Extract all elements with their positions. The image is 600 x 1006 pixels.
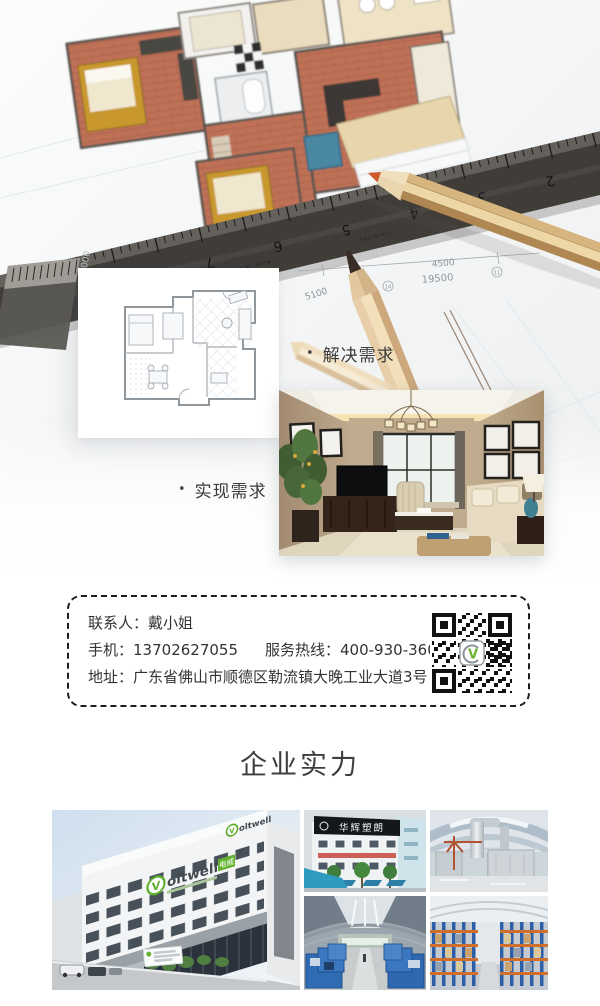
bullet-icon: •	[178, 482, 187, 497]
bullet-icon: •	[306, 346, 315, 361]
headquarters-building-scene: V oltwell 电威 ® V oltwell	[52, 810, 300, 990]
solve-need-text: 解决需求	[323, 341, 395, 366]
facility-photo-headquarters: V oltwell 电威 ® V oltwell	[52, 810, 300, 990]
living-room-scene	[279, 390, 544, 556]
address-label: 地址：	[88, 668, 133, 686]
hero-section: 7 6 5 4 3 2 MADE IN CHINA STAINLESS	[0, 0, 600, 585]
huahui-building-scene: 华辉塑朗	[304, 810, 426, 892]
hotline-label: 服务热线：	[265, 641, 340, 659]
dim-4500: 4500	[431, 258, 455, 270]
warehouse-scene	[430, 896, 548, 990]
facility-gallery: V oltwell 电威 ® V oltwell	[52, 810, 548, 990]
floorplan-sketch-card	[78, 268, 279, 438]
svg-text:V: V	[229, 825, 235, 836]
ruler-corner	[0, 258, 80, 350]
slogan-banner	[318, 853, 396, 858]
interior-photo	[279, 390, 544, 556]
workshop-floor	[430, 876, 548, 892]
spray-workshop-scene	[430, 810, 548, 892]
address-value: 广东省佛山市顺德区勒流镇大晚工业大道3号	[133, 668, 428, 686]
mobile-label: 手机：	[88, 641, 133, 659]
realize-need-text: 实现需求	[195, 477, 267, 502]
floorplan-sketch	[115, 283, 265, 415]
svg-text:11: 11	[494, 271, 500, 277]
label-solve-need: • 解决需求	[306, 341, 395, 366]
checker-tiles	[234, 42, 264, 72]
mobile-number: 13702627055	[133, 641, 238, 659]
svg-text:V: V	[152, 879, 161, 894]
qr-code-image: V	[430, 611, 514, 695]
facility-photo-huahui-building: 华辉塑朗	[304, 810, 426, 892]
label-realize-need: • 实现需求	[178, 477, 267, 502]
svg-text:14: 14	[385, 285, 391, 291]
facility-photo-spray-workshop	[430, 810, 548, 892]
qr-logo-mark: V	[468, 648, 478, 663]
qr-center-logo: V	[460, 641, 484, 665]
contact-person-name: 戴小姐	[148, 614, 193, 632]
contact-person-label: 联系人：	[88, 614, 148, 632]
qr-code: V	[430, 611, 514, 695]
contact-card: 联系人：戴小姐 手机：13702627055服务热线：400-930-3600 …	[67, 595, 530, 707]
ottoman	[417, 533, 491, 556]
huahui-sign-text: 华辉塑朗	[339, 822, 385, 834]
facility-photo-machine-workshop	[304, 896, 426, 990]
facility-photo-warehouse	[430, 896, 548, 990]
worker	[363, 954, 366, 962]
section-title-strength: 企业实力	[0, 743, 600, 782]
product-detail-page: 7 6 5 4 3 2 MADE IN CHINA STAINLESS	[0, 0, 600, 1006]
machine-workshop-scene	[304, 896, 426, 990]
entrance-signboard	[143, 946, 182, 966]
